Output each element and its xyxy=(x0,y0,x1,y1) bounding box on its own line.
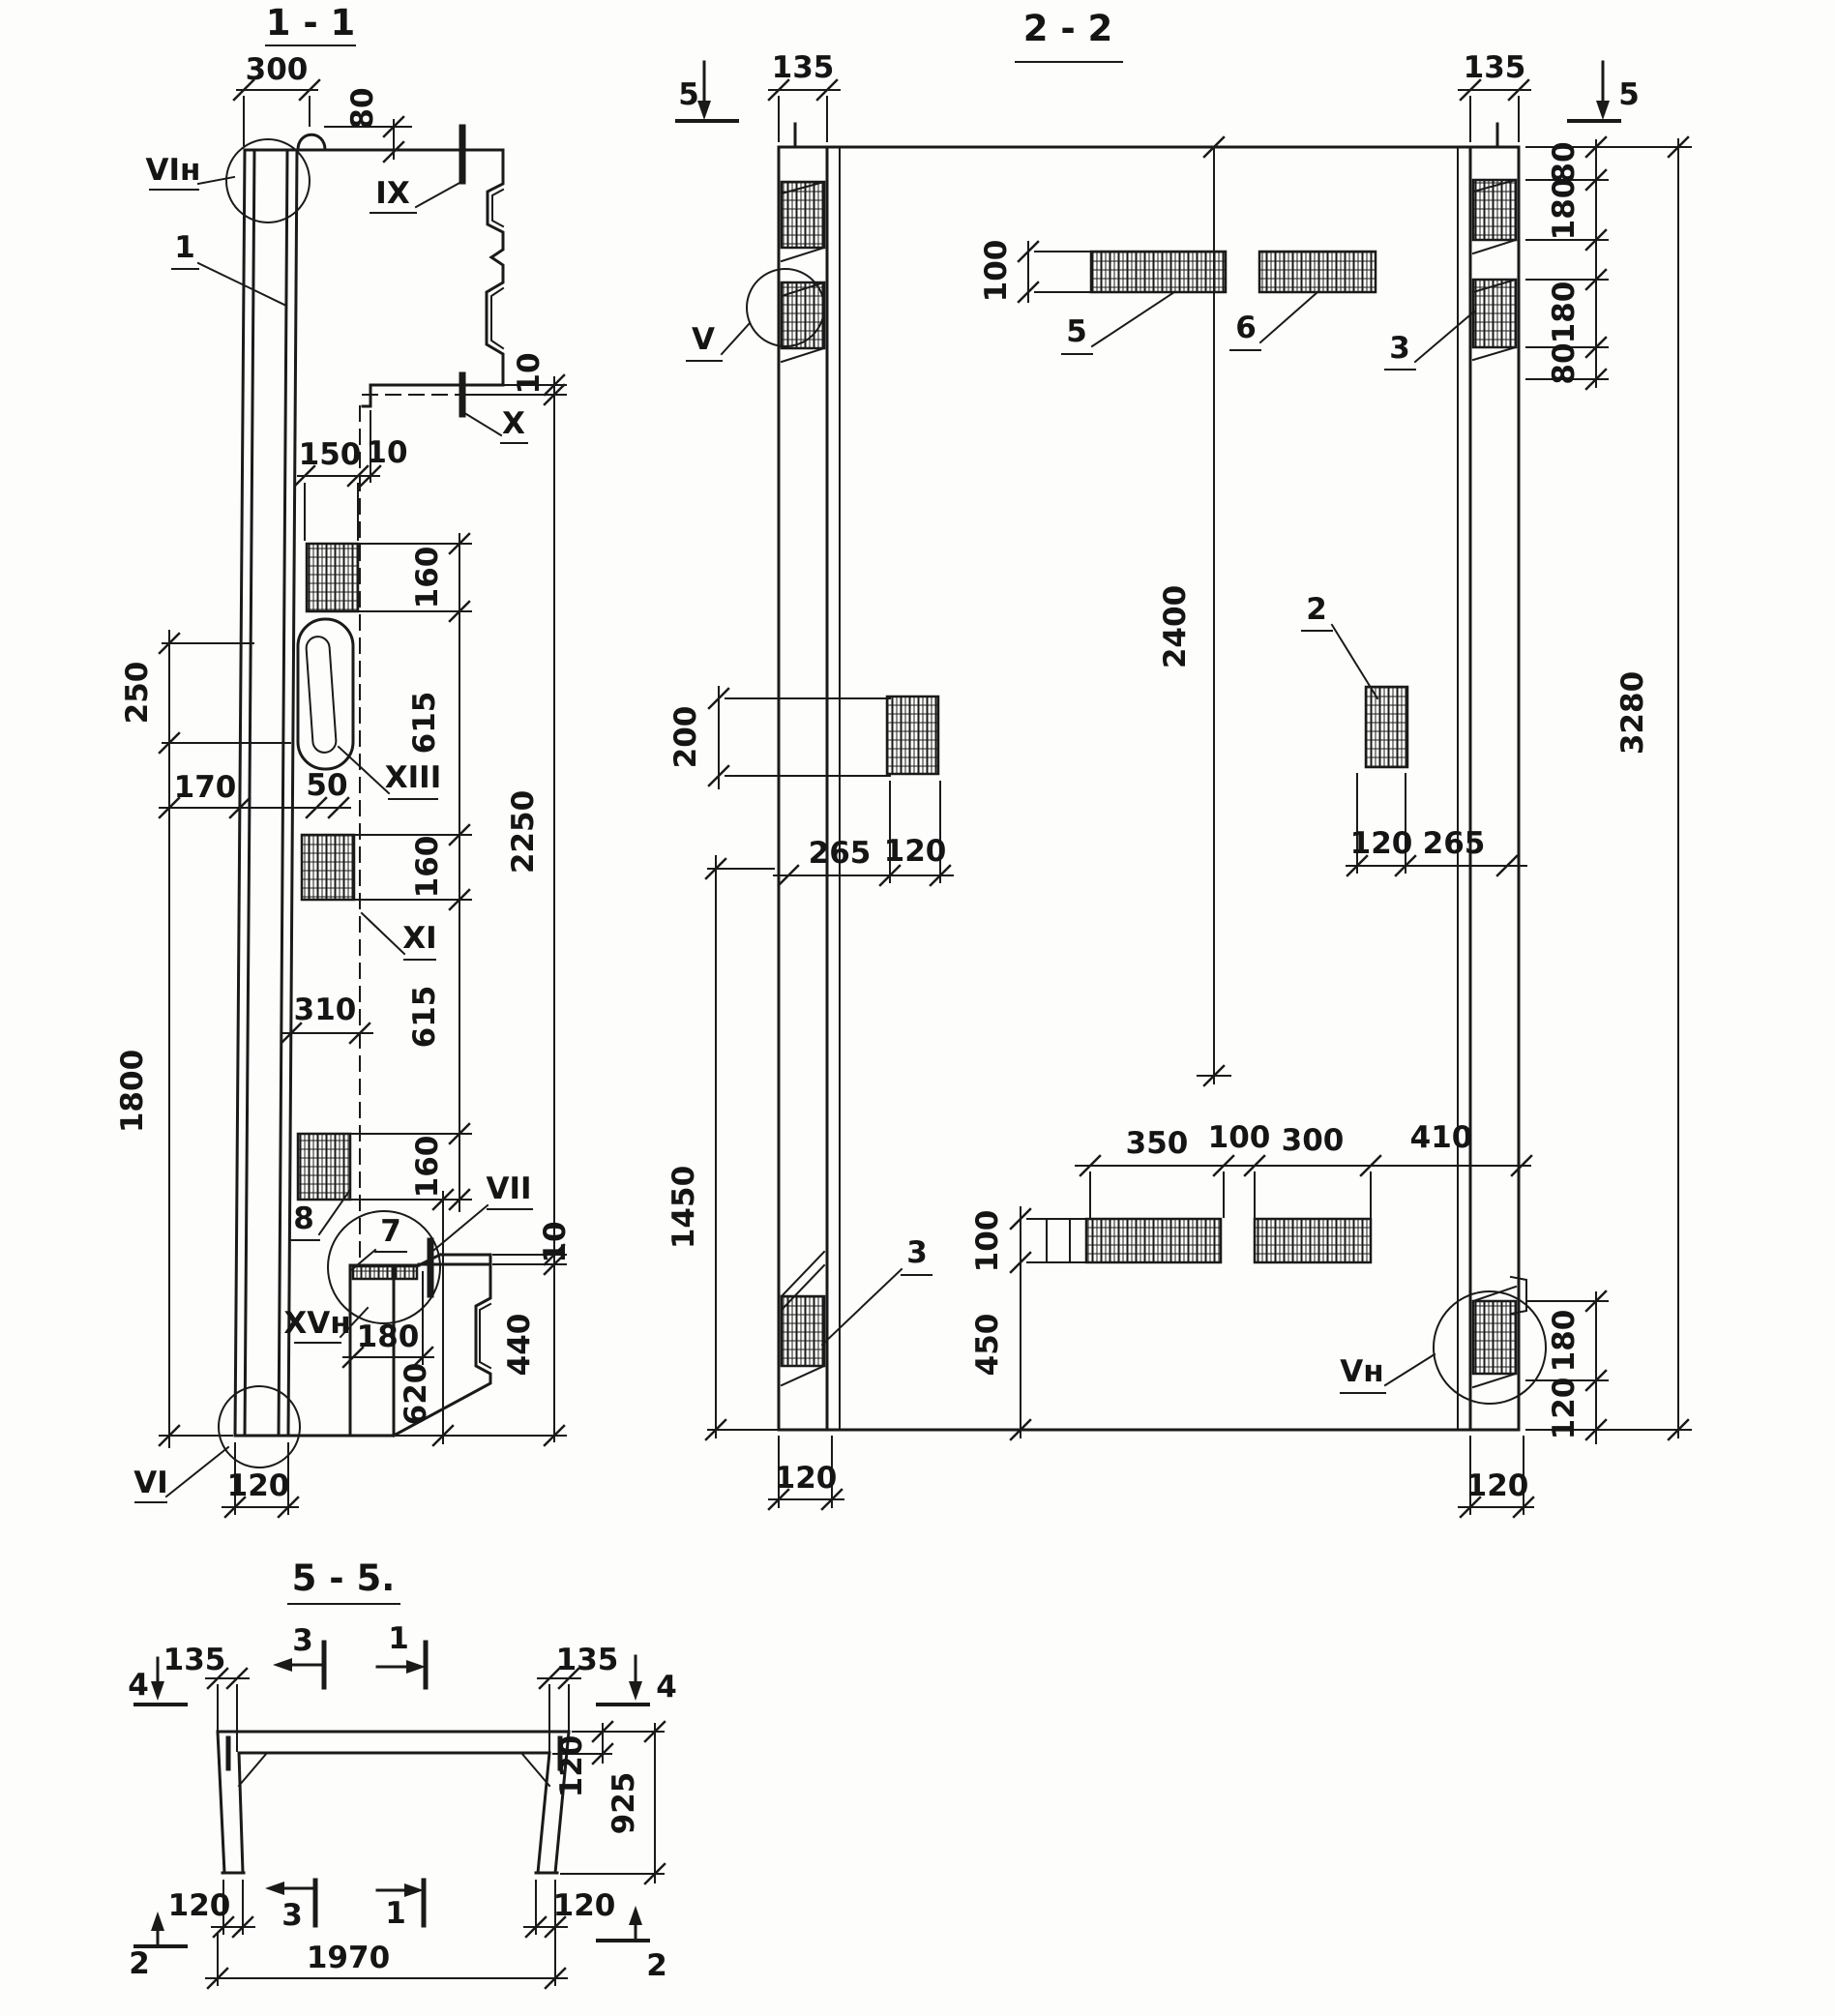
dim-135-right: 135 xyxy=(1464,50,1526,85)
label-vi: VI xyxy=(133,1466,168,1500)
dim-1450: 1450 xyxy=(666,1166,701,1249)
dim-135-left: 135 xyxy=(772,50,835,85)
label-5: 5 xyxy=(1066,314,1087,349)
section-1-1-outline xyxy=(235,134,503,1436)
dim-2400: 2400 xyxy=(1158,585,1193,668)
cut-marker-2-left: 2 xyxy=(129,1946,150,1981)
dim-410: 410 xyxy=(1410,1120,1473,1155)
section-5-5-title: 5 - 5. xyxy=(292,1557,396,1599)
label-3-top: 3 xyxy=(1389,331,1410,366)
label-1: 1 xyxy=(174,230,195,265)
drawing-sheet: 1 - 1 300 80 VIн 1 IX X 10 150 10 160 61… xyxy=(0,0,1835,2016)
dim-160-3: 160 xyxy=(410,1136,445,1199)
section-5-5-texts: 5 - 5. 3 1 4 4 135 135 120 925 120 120 1… xyxy=(128,1557,677,1983)
dim-120: 120 xyxy=(227,1468,290,1503)
dim-2250: 2250 xyxy=(506,790,541,874)
dim-300: 300 xyxy=(1282,1123,1345,1158)
section-1-1-title: 1 - 1 xyxy=(266,2,356,44)
dim-120-bottom-right: 120 xyxy=(1547,1378,1582,1440)
dim-620: 620 xyxy=(399,1363,433,1426)
dim-50: 50 xyxy=(306,768,347,803)
dim-170: 170 xyxy=(174,770,237,805)
label-ix: IX xyxy=(375,176,410,211)
label-xi: XI xyxy=(402,921,436,956)
dim-120-bottom-left: 120 xyxy=(775,1461,838,1496)
cut-marker-4-left: 4 xyxy=(128,1668,149,1703)
cut-marker-2-right: 2 xyxy=(646,1948,667,1983)
label-3-bottom: 3 xyxy=(906,1235,928,1270)
dim-310: 310 xyxy=(294,993,357,1027)
dim-250: 250 xyxy=(120,662,155,725)
dim-10-gap: 10 xyxy=(366,435,407,470)
label-x: X xyxy=(502,406,525,441)
dim-180-bottom-right: 180 xyxy=(1547,1310,1582,1373)
cut-marker-4-right: 4 xyxy=(656,1670,677,1705)
dim-120-bottom-right: 120 xyxy=(553,1888,616,1923)
dim-100-mid: 100 xyxy=(1208,1120,1271,1155)
dim-120-right: 120 xyxy=(1350,826,1413,861)
label-vn: Vн xyxy=(1340,1354,1383,1389)
dim-180-b: 180 xyxy=(1547,282,1582,344)
dim-180: 180 xyxy=(357,1319,420,1354)
cut-marker-3-top: 3 xyxy=(292,1623,313,1658)
dim-200: 200 xyxy=(668,706,703,769)
section-1-1-embedded-plates xyxy=(298,544,358,1200)
dim-10-foot: 10 xyxy=(538,1221,573,1262)
dim-120-bottom-left: 120 xyxy=(168,1888,231,1923)
label-vih: VIн xyxy=(146,153,201,188)
dim-265-right: 265 xyxy=(1423,826,1486,861)
dim-135-left: 135 xyxy=(163,1643,226,1677)
dim-350: 350 xyxy=(1126,1126,1189,1161)
label-v: V xyxy=(692,322,715,357)
dim-100-top: 100 xyxy=(979,240,1014,303)
dim-3280: 3280 xyxy=(1615,671,1650,755)
dim-80: 80 xyxy=(345,87,380,129)
cut-marker-3-bottom: 3 xyxy=(281,1898,303,1933)
dim-615-1: 615 xyxy=(407,692,442,755)
dim-450: 450 xyxy=(970,1314,1005,1377)
section-5-5-outline xyxy=(218,1732,569,1873)
section-2-2-title: 2 - 2 xyxy=(1023,8,1113,49)
dim-265-left: 265 xyxy=(809,836,872,871)
cut-marker-1-top: 1 xyxy=(388,1621,409,1656)
dim-80-b: 80 xyxy=(1547,342,1582,384)
dim-160-1: 160 xyxy=(410,547,445,609)
dim-1970: 1970 xyxy=(307,1941,390,1975)
dim-10-step: 10 xyxy=(512,352,547,394)
drawing-canvas: 1 - 1 300 80 VIн 1 IX X 10 150 10 160 61… xyxy=(0,0,1835,2016)
label-6: 6 xyxy=(1235,311,1257,345)
dim-135-right: 135 xyxy=(556,1643,619,1677)
dim-120-left: 120 xyxy=(884,834,947,869)
dim-615-2: 615 xyxy=(407,986,442,1049)
label-vii: VII xyxy=(486,1171,531,1206)
dim-300: 300 xyxy=(246,52,309,87)
cut-marker-5-right: 5 xyxy=(1618,77,1640,112)
label-xvh: XVн xyxy=(283,1306,350,1341)
label-7: 7 xyxy=(380,1214,401,1249)
dim-925: 925 xyxy=(607,1772,641,1835)
dim-100-bot: 100 xyxy=(970,1210,1005,1273)
dim-160-2: 160 xyxy=(410,836,445,899)
cut-marker-1-bottom: 1 xyxy=(385,1896,406,1931)
dim-150: 150 xyxy=(299,437,362,472)
section-2-2-dimensions xyxy=(706,80,1691,1517)
label-2: 2 xyxy=(1306,592,1327,627)
dim-1800: 1800 xyxy=(115,1050,150,1133)
cut-marker-5-left: 5 xyxy=(678,77,699,112)
label-8: 8 xyxy=(293,1201,314,1236)
label-xiii: XIII xyxy=(385,760,442,795)
dim-120-bottom-right-b: 120 xyxy=(1466,1468,1529,1503)
dim-120-top-right: 120 xyxy=(554,1735,589,1798)
dim-180-a: 180 xyxy=(1547,178,1582,241)
dim-440: 440 xyxy=(502,1314,537,1377)
dim-80-a: 80 xyxy=(1547,141,1582,183)
